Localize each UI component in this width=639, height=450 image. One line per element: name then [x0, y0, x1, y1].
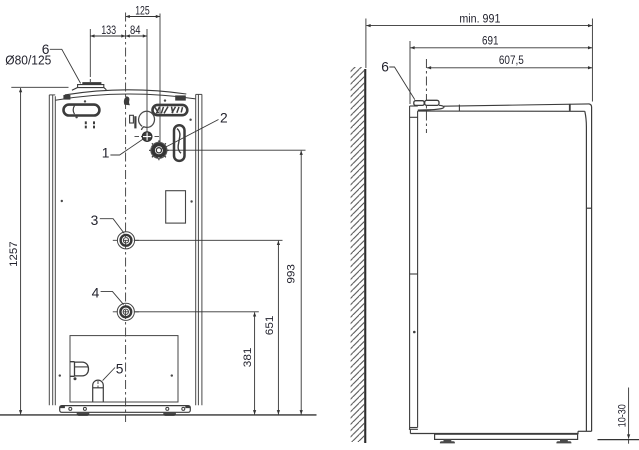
- svg-text:607,5: 607,5: [499, 53, 524, 67]
- svg-text:133: 133: [101, 23, 116, 37]
- svg-text:691: 691: [482, 33, 499, 47]
- svg-text:4: 4: [92, 286, 100, 301]
- svg-text:84: 84: [130, 23, 141, 37]
- svg-text:651: 651: [264, 316, 276, 336]
- svg-text:2: 2: [220, 111, 228, 126]
- svg-text:min. 991: min. 991: [459, 11, 500, 25]
- svg-text:381: 381: [242, 348, 254, 368]
- svg-text:3: 3: [91, 213, 99, 228]
- svg-text:993: 993: [286, 264, 298, 284]
- svg-text:10-30: 10-30: [617, 404, 629, 427]
- svg-text:5: 5: [116, 361, 124, 376]
- svg-text:6: 6: [381, 60, 389, 75]
- svg-text:125: 125: [135, 3, 150, 17]
- svg-text:1: 1: [102, 145, 110, 160]
- svg-text:1257: 1257: [8, 241, 20, 267]
- svg-text:Ø80/125: Ø80/125: [5, 54, 51, 68]
